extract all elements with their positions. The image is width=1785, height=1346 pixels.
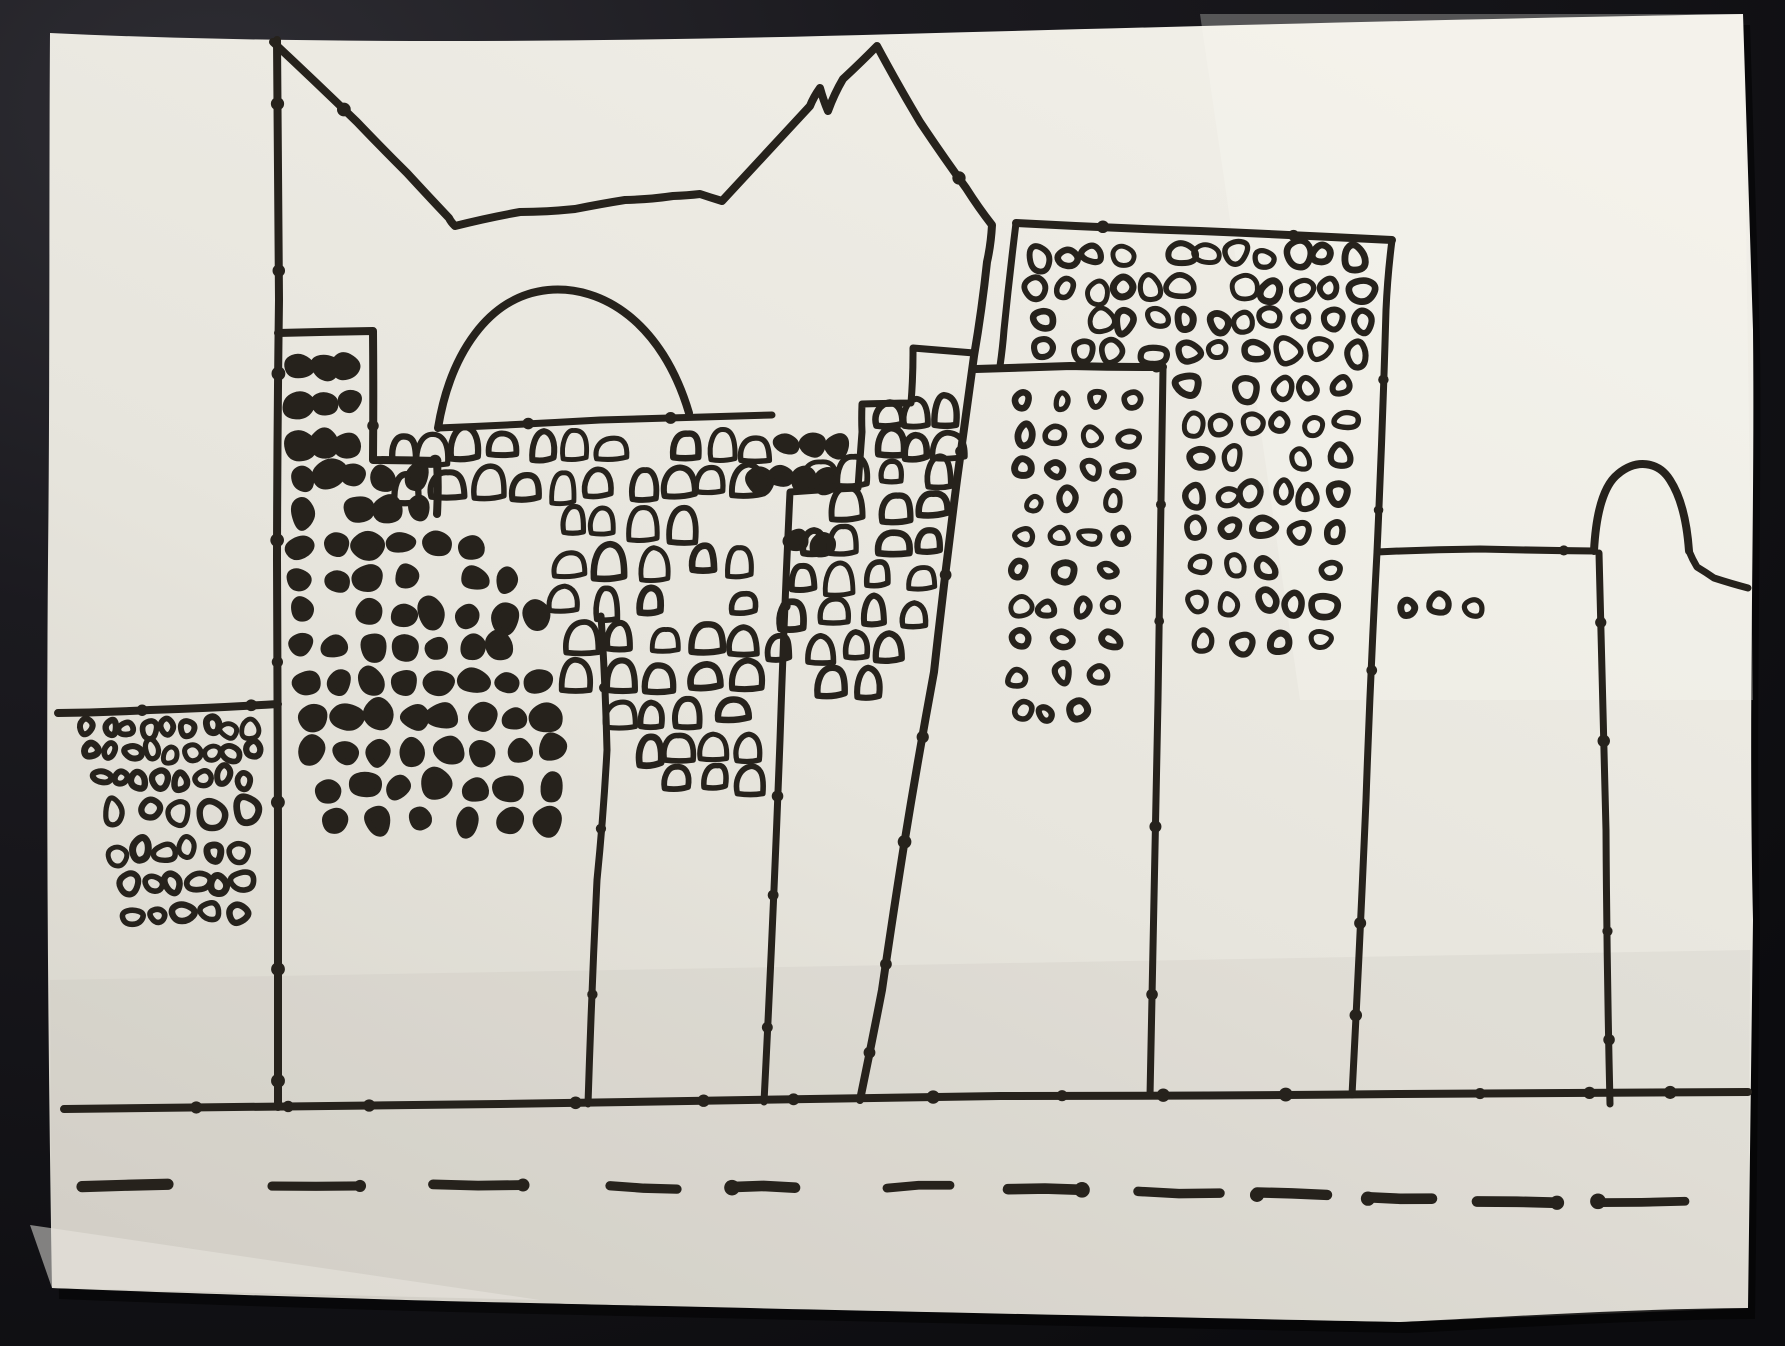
- paper-sheet: [30, 14, 1760, 1333]
- city-sketch: [0, 0, 1785, 1346]
- photo-of-sketch: [0, 0, 1785, 1346]
